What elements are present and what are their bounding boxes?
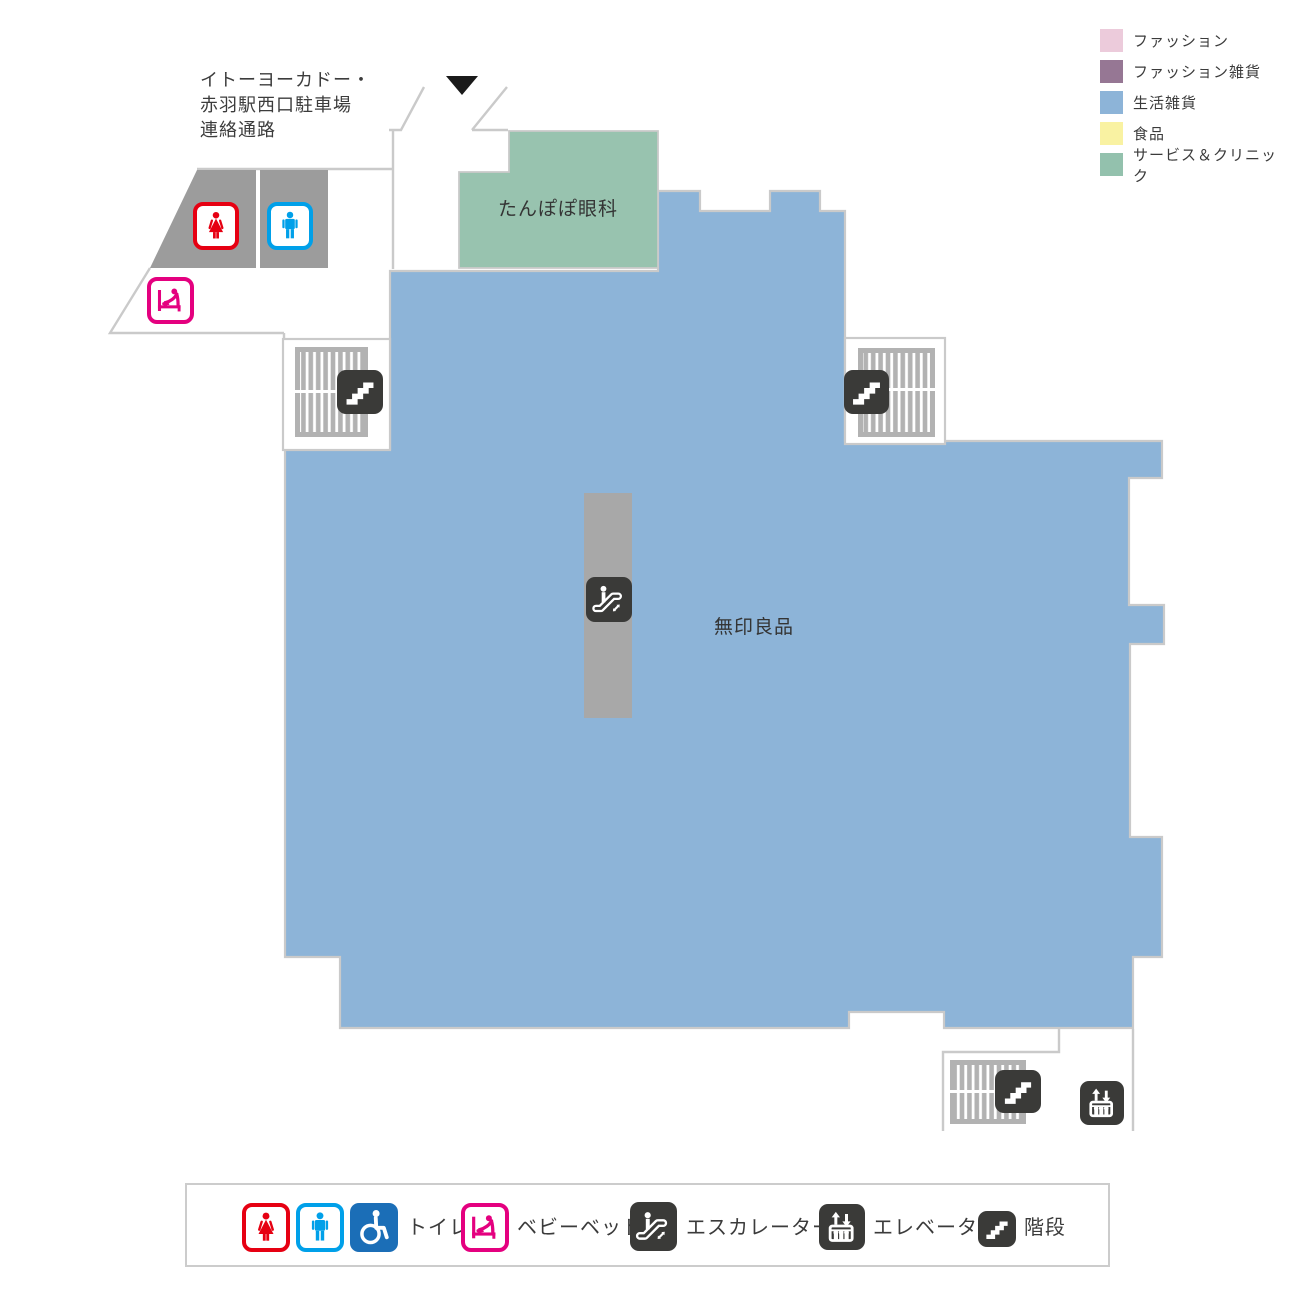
legend-swatch-fashion (1100, 29, 1123, 52)
baby-bed-icon (461, 1203, 509, 1252)
floor-map-page: { "legend": { "items": [ {"label": "ファッシ… (0, 0, 1300, 1300)
entrance-label-line3: 連絡通路 (200, 118, 371, 143)
legend-swatch-food (1100, 122, 1123, 145)
legend-swatch-fashion-goods (1100, 60, 1123, 83)
legend-swatch-service-clinic (1100, 153, 1123, 176)
store-label-muji: 無印良品 (654, 612, 854, 639)
elevator-icon (819, 1204, 865, 1250)
legend-label: ファッション雑貨 (1133, 57, 1261, 86)
entrance-arrow-icon (446, 76, 478, 95)
category-legend: ファッション ファッション雑貨 生活雑貨 食品 サービス＆クリニック (1100, 26, 1290, 181)
stairs-icon (337, 370, 383, 414)
facility-legend: トイレ ベビーベッド エスカレーター エレベーター 階段 (185, 1183, 1110, 1267)
escalator-icon (586, 577, 632, 622)
baby-bed-legend-label: ベビーベッド (517, 1185, 643, 1265)
women-toilet-icon (242, 1203, 290, 1252)
stairs-icon (995, 1070, 1041, 1113)
legend-row: サービス＆クリニック (1100, 150, 1290, 181)
stairs-legend-label: 階段 (1024, 1185, 1066, 1265)
baby-bed-icon (147, 277, 194, 324)
legend-label: ファッション (1133, 26, 1229, 55)
legend-label: サービス＆クリニック (1133, 150, 1290, 179)
men-toilet-icon (296, 1203, 344, 1252)
legend-row: ファッション雑貨 (1100, 57, 1290, 88)
legend-row: 生活雑貨 (1100, 88, 1290, 119)
stairs-icon (978, 1211, 1016, 1247)
store-area-muji (285, 191, 1164, 1028)
store-label-tanpopo-eye-clinic: たんぽぽ眼科 (458, 194, 658, 221)
legend-row: ファッション (1100, 26, 1290, 57)
stairs-icon (844, 370, 889, 414)
women-toilet-icon (193, 202, 239, 250)
men-toilet-icon (267, 202, 313, 250)
legend-swatch-household (1100, 91, 1123, 114)
elevator-icon (1080, 1081, 1124, 1125)
escalator-legend-label: エスカレーター (686, 1185, 833, 1265)
escalator-icon (630, 1202, 677, 1251)
legend-label: 生活雑貨 (1133, 88, 1197, 117)
entrance-label-line1: イトーヨーカドー・ (200, 68, 371, 93)
wheelchair-icon (350, 1203, 398, 1252)
entrance-label-line2: 赤羽駅西口駐車場 (200, 93, 371, 118)
entrance-label: イトーヨーカドー・ 赤羽駅西口駐車場 連絡通路 (200, 68, 371, 143)
